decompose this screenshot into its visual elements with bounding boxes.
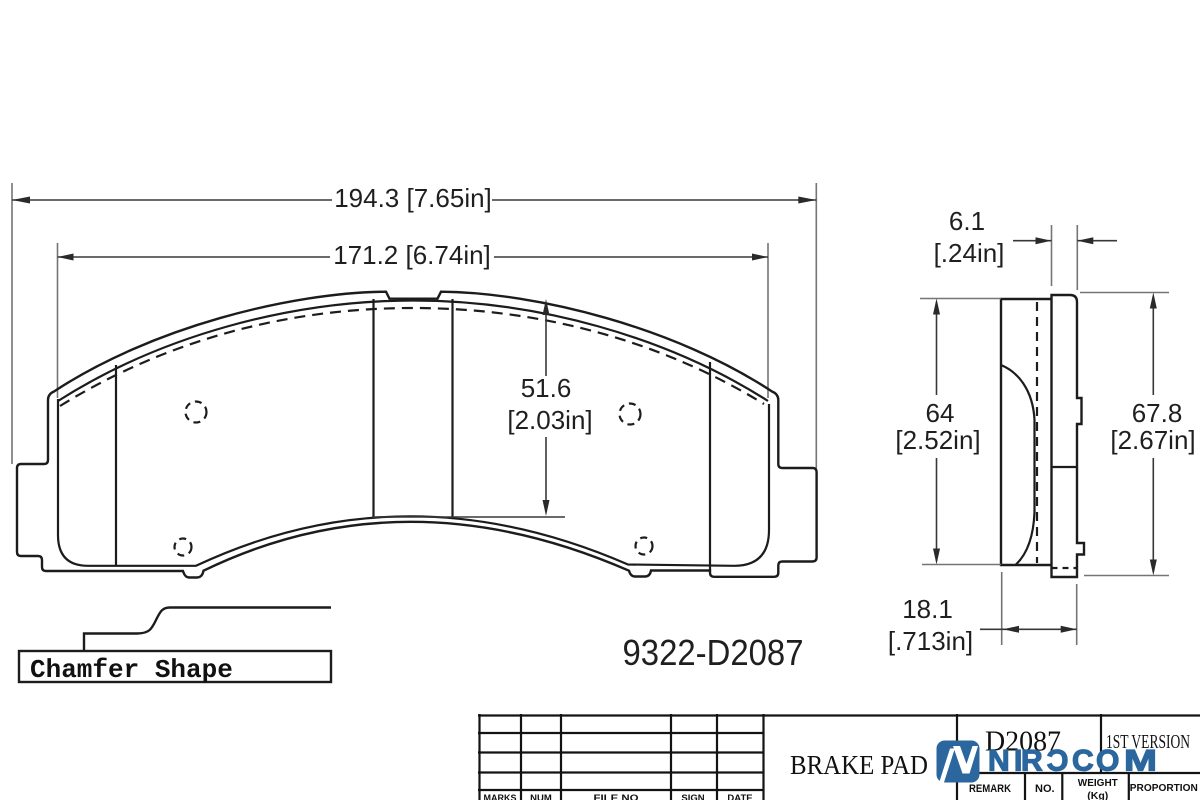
svg-text:9322-D2087: 9322-D2087 bbox=[623, 632, 804, 673]
svg-text:WEIGHT: WEIGHT bbox=[1078, 777, 1119, 789]
svg-text:M: M bbox=[1124, 745, 1157, 778]
svg-text:[2.52in]: [2.52in] bbox=[895, 425, 980, 455]
svg-text:MARKS: MARKS bbox=[484, 793, 517, 800]
svg-text:C: C bbox=[1047, 745, 1069, 778]
svg-text:64: 64 bbox=[926, 398, 955, 428]
svg-text:N: N bbox=[988, 745, 1010, 778]
svg-text:REMARK: REMARK bbox=[969, 783, 1011, 795]
svg-text:NO.: NO. bbox=[1035, 783, 1055, 795]
svg-text:18.1: 18.1 bbox=[902, 594, 953, 624]
svg-text:[2.03in]: [2.03in] bbox=[507, 405, 592, 435]
svg-text:PROPORTION: PROPORTION bbox=[1130, 782, 1198, 794]
svg-text:194.3 [7.65in]: 194.3 [7.65in] bbox=[334, 183, 492, 213]
svg-text:Chamfer Shape: Chamfer Shape bbox=[30, 655, 233, 685]
svg-text:R: R bbox=[1021, 745, 1043, 778]
svg-text:NUM: NUM bbox=[530, 793, 552, 800]
svg-text:[.713in]: [.713in] bbox=[888, 626, 973, 656]
svg-text:C: C bbox=[1072, 745, 1094, 778]
svg-text:51.6: 51.6 bbox=[521, 373, 572, 403]
svg-text:BRAKE PAD: BRAKE PAD bbox=[790, 750, 928, 780]
svg-text:[2.67in]: [2.67in] bbox=[1110, 425, 1195, 455]
svg-text:FILE NO: FILE NO bbox=[594, 793, 639, 800]
svg-text:(Kg): (Kg) bbox=[1087, 790, 1108, 800]
svg-text:[.24in]: [.24in] bbox=[934, 238, 1005, 268]
svg-text:6.1: 6.1 bbox=[949, 206, 985, 236]
svg-text:171.2 [6.74in]: 171.2 [6.74in] bbox=[333, 240, 491, 270]
svg-text:O: O bbox=[1096, 745, 1119, 778]
svg-text:SIGN: SIGN bbox=[681, 793, 704, 800]
svg-text:DATE: DATE bbox=[727, 793, 752, 800]
svg-text:67.8: 67.8 bbox=[1132, 398, 1183, 428]
